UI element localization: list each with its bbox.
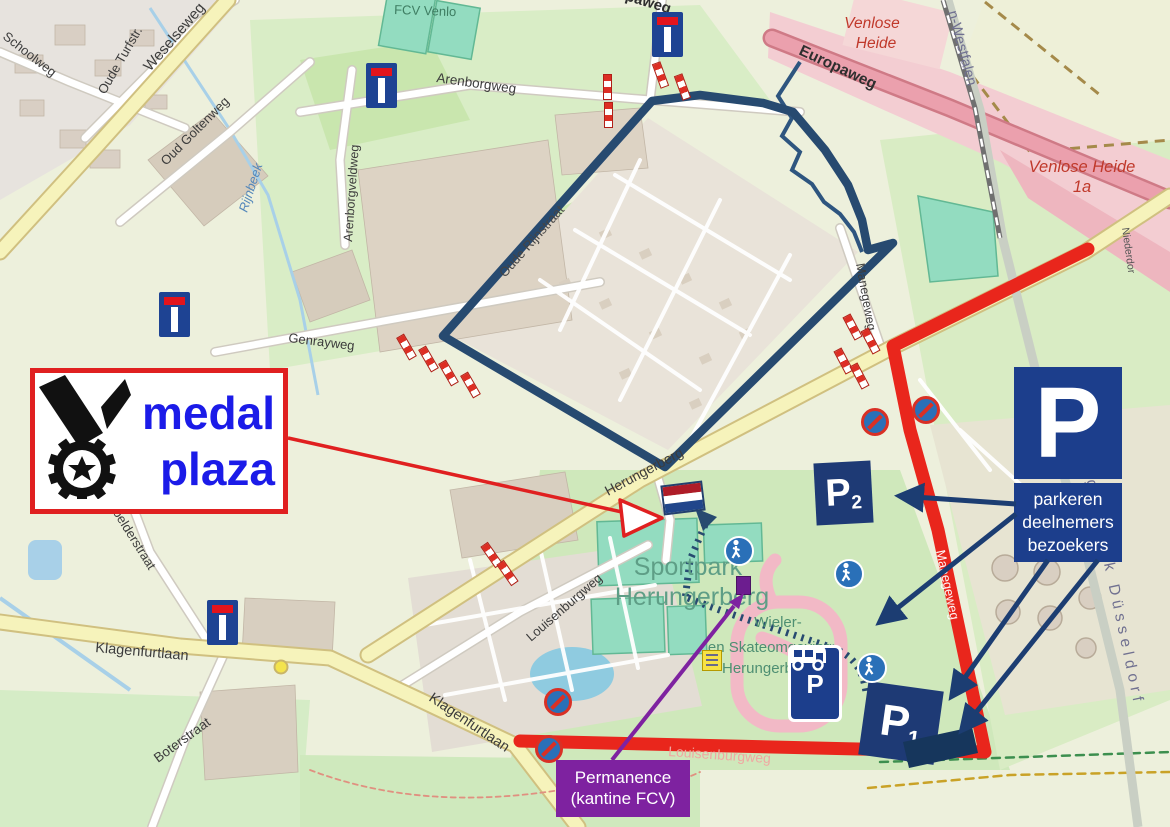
permanence-line2: (kantine FCV)	[558, 788, 688, 809]
medal-plaza-line1: medal	[131, 385, 275, 441]
place-label: 1a	[1073, 178, 1091, 196]
place-label: Venlose	[844, 15, 900, 32]
place-label: Heide	[856, 35, 897, 52]
parking-p1-sign: P1	[858, 681, 944, 765]
medal-icon	[35, 378, 131, 504]
parking-text-line2: deelnemers	[1014, 511, 1122, 534]
camper-p-letter: P	[806, 671, 823, 697]
dead-end-sign-icon	[366, 63, 397, 108]
medal-plaza-line2: plaza	[131, 441, 275, 497]
dead-end-sign-icon	[207, 600, 238, 645]
event-map: Weselseweg Schoolweg Oude Turfstr. Arenb…	[0, 0, 1170, 827]
parking-main-sign: P parkeren deelnemers bezoekers	[1014, 367, 1122, 562]
road-closure-barrier-icon	[604, 102, 613, 128]
pedestrian-zone-icon	[857, 653, 887, 683]
dead-end-sign-icon	[652, 12, 683, 57]
pedestrian-zone-icon	[724, 536, 754, 566]
p2-letter: P	[824, 471, 852, 515]
parking-text-line3: bezoekers	[1014, 534, 1122, 557]
map-note-icon	[702, 650, 722, 671]
camper-parking-sign: P	[788, 645, 842, 722]
place-label: FCV Venlo	[394, 2, 457, 19]
p1-sub: 1	[906, 725, 922, 752]
parking-p-icon: P	[1014, 367, 1122, 479]
dead-end-sign-icon	[159, 292, 190, 337]
permanence-line1: Permanence	[558, 767, 688, 788]
no-parking-icon	[535, 735, 563, 763]
place-label: Venlose Heide	[1029, 158, 1136, 176]
parking-p2-sign: P2	[813, 461, 873, 526]
no-parking-icon	[544, 688, 572, 716]
dutch-flag-icon	[660, 481, 705, 516]
pedestrian-zone-icon	[834, 559, 864, 589]
parking-text-line1: parkeren	[1014, 488, 1122, 511]
no-parking-icon	[912, 396, 940, 424]
no-parking-icon	[861, 408, 889, 436]
place-label: Wieler-	[754, 614, 802, 631]
permanence-marker	[736, 576, 751, 595]
road-closure-barrier-icon	[603, 74, 612, 100]
medal-plaza-callout: medal plaza	[30, 368, 288, 514]
permanence-label: Permanence (kantine FCV)	[556, 760, 690, 817]
p2-sub: 2	[851, 493, 863, 516]
